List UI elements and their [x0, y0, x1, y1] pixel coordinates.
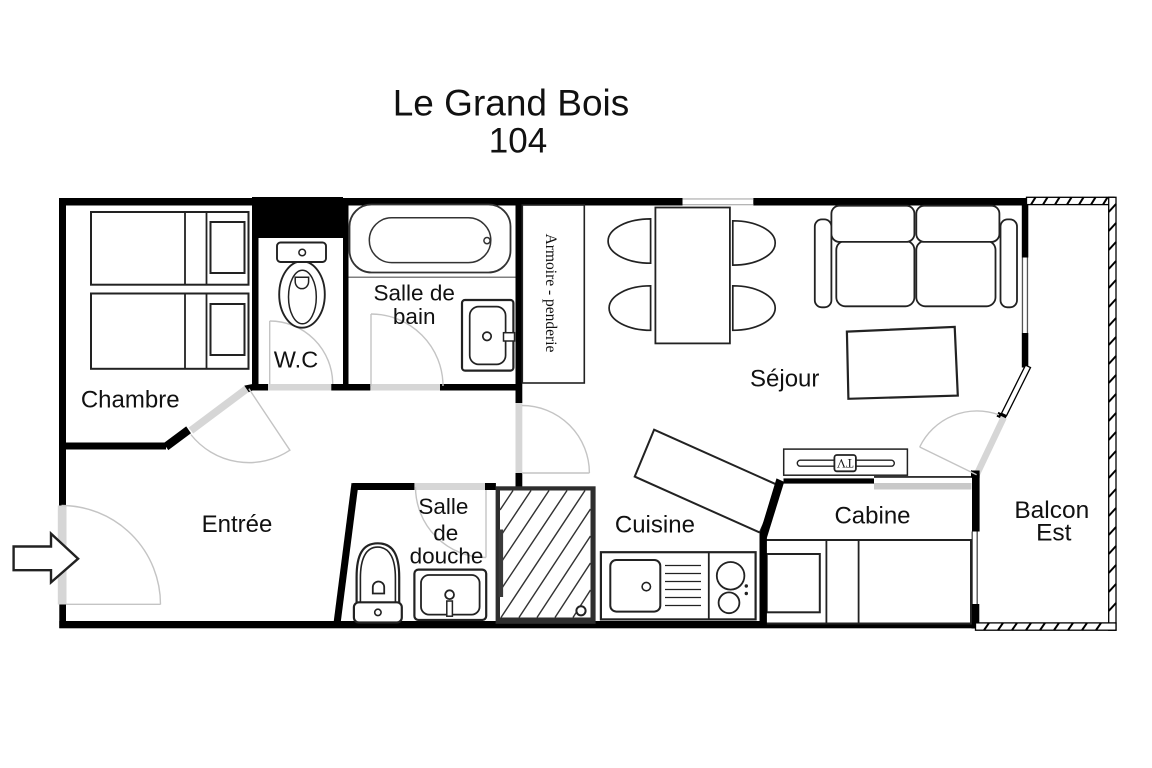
svg-text:Séjour: Séjour — [750, 366, 819, 393]
svg-text:Entrée: Entrée — [202, 511, 273, 538]
svg-text:Le Grand Bois: Le Grand Bois — [393, 83, 630, 124]
svg-text:Salle: Salle — [418, 494, 468, 519]
svg-text:Cabine: Cabine — [834, 502, 910, 529]
svg-text:TV: TV — [837, 456, 854, 470]
svg-text:Est: Est — [1036, 519, 1072, 546]
svg-text:Salle de: Salle de — [374, 280, 455, 305]
svg-text:104: 104 — [489, 122, 547, 161]
svg-text:Armoire - penderie: Armoire - penderie — [542, 234, 559, 353]
svg-text:de: de — [433, 521, 458, 546]
svg-text:Chambre: Chambre — [81, 386, 180, 413]
svg-text:douche: douche — [410, 543, 484, 568]
svg-text:W.C: W.C — [274, 347, 318, 373]
svg-text:Cuisine: Cuisine — [615, 512, 695, 539]
svg-text:bain: bain — [393, 304, 436, 329]
